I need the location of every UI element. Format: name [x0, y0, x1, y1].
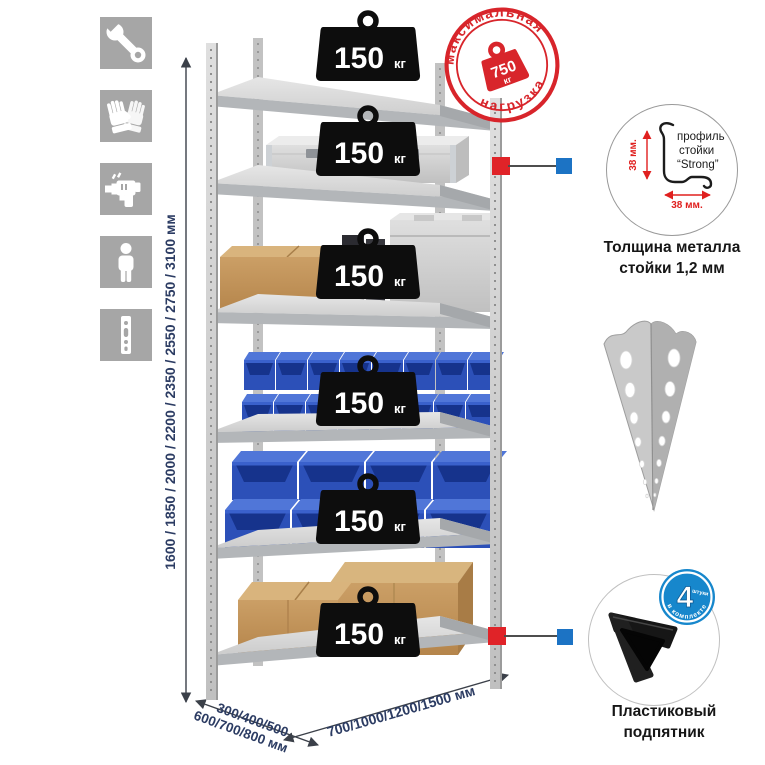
foot-caption: Пластиковый подпятник — [583, 701, 745, 743]
svg-text:150: 150 — [334, 505, 384, 538]
badge-value: 150 — [334, 42, 384, 75]
svg-text:кг: кг — [394, 519, 407, 534]
badge-unit: кг — [394, 56, 407, 71]
person-icon — [100, 236, 152, 288]
connector-line-top — [508, 165, 558, 167]
profile-caption: Толщина металла стойки 1,2 мм — [586, 237, 758, 279]
svg-text:150: 150 — [334, 137, 384, 170]
stamp-weight-icon: 750 кг — [474, 37, 530, 93]
gloves-icon — [100, 90, 152, 142]
svg-text:кг: кг — [394, 632, 407, 647]
profile-caption-line1: Толщина металла — [586, 237, 758, 258]
height-dimension-label: 1600 / 1850 / 2000 / 2200 / 2350 / 2550 … — [162, 112, 182, 672]
profile-label-3: “Strong” — [677, 159, 719, 171]
profile-dim-vertical: 38 мм. — [628, 139, 639, 171]
svg-text:150: 150 — [334, 387, 384, 420]
quantity-badge: 4 штуки в комплекте — [658, 568, 716, 626]
svg-text:150: 150 — [334, 260, 384, 293]
profile-label-1: профиль — [677, 131, 725, 143]
foot-caption-line2: подпятник — [583, 722, 745, 743]
quantity-number: 4 — [677, 581, 694, 614]
connector-line-bottom — [504, 635, 559, 637]
rack-post-icon — [100, 309, 152, 361]
infographic-stage: 1600 / 1850 / 2000 / 2200 / 2350 / 2550 … — [0, 0, 765, 765]
profile-dim-horizontal: 38 мм. — [671, 200, 703, 211]
svg-text:кг: кг — [394, 274, 407, 289]
profile-caption-line2: стойки 1,2 мм — [586, 258, 758, 279]
angle-post-image — [596, 308, 706, 523]
post-profile-detail: профиль стойки “Strong” 38 мм. 38 мм. — [606, 104, 738, 236]
svg-text:150: 150 — [334, 618, 384, 651]
svg-text:кг: кг — [394, 401, 407, 416]
connector-blue-square-bottom — [557, 629, 573, 645]
wrench-icon — [100, 17, 152, 69]
connector-blue-square-top — [556, 158, 572, 174]
svg-text:кг: кг — [394, 151, 407, 166]
foot-caption-line1: Пластиковый — [583, 701, 745, 722]
load-badge-1: 150 кг — [316, 13, 420, 81]
drill-icon — [100, 163, 152, 215]
profile-label-2: стойки — [679, 145, 714, 157]
